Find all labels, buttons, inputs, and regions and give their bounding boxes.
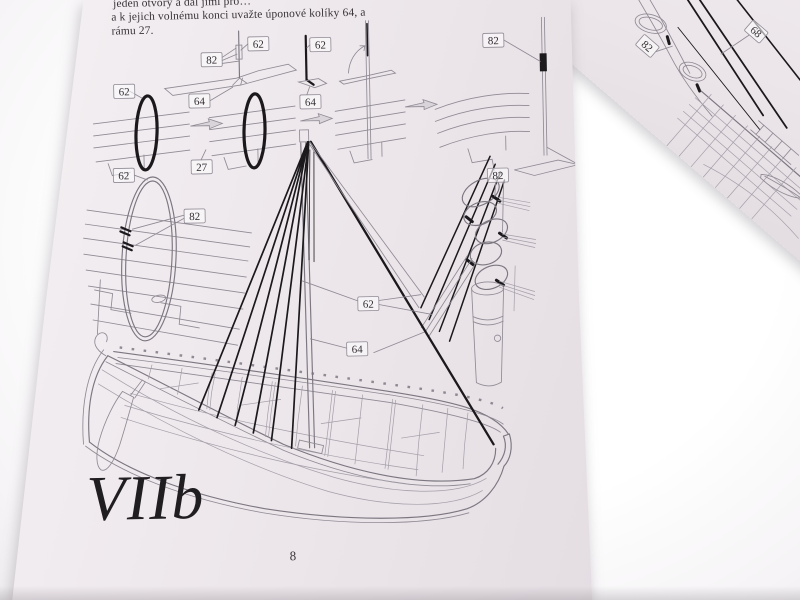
hull-section-sketch-2 <box>209 106 296 170</box>
callout-label: 62 <box>119 86 130 98</box>
step-arrow <box>190 118 222 129</box>
callout-label: 62 <box>363 299 374 311</box>
main-page-drawing: jeden otvory a dál jimi pro… a k jejich … <box>0 0 800 600</box>
step-arrow <box>300 113 332 124</box>
bow-spiral <box>95 333 108 356</box>
callout-64-m: 64 <box>311 338 368 357</box>
step-arrow <box>405 99 437 110</box>
figure-label: VIIb <box>86 461 205 534</box>
photo-of-instruction-page: 82 68 jeden otvory a dál jimi pro… a k j… <box>0 0 800 600</box>
callout-82-f: 82 <box>483 32 541 62</box>
rope-loops-cluster <box>457 172 537 301</box>
sketch-mast-spar <box>338 20 397 159</box>
callout-64-c: 64 <box>189 87 233 108</box>
callout-64-e: 64 <box>300 87 321 109</box>
hull-section-sketch-4 <box>435 93 530 171</box>
masthead <box>300 130 309 142</box>
callout-label: 82 <box>206 55 217 67</box>
callout-82-j: 82 <box>132 209 206 245</box>
callout-label: 82 <box>189 211 200 223</box>
callout-label: 82 <box>492 170 503 182</box>
callout-62-g: 62 <box>114 84 142 99</box>
page-number: 8 <box>290 548 297 563</box>
callout-82-b: 82 <box>201 48 238 67</box>
seizing-marks <box>120 227 132 250</box>
rope-loop-small <box>243 94 265 168</box>
callout-62-a: 62 <box>241 37 269 52</box>
callout-label: 62 <box>315 39 326 51</box>
main-page: jeden otvory a dál jimi pro… a k jejich … <box>0 0 800 600</box>
sketch-mast-82 <box>511 17 578 176</box>
hull-planking-left <box>83 207 254 348</box>
shroud-fan-right <box>418 156 508 342</box>
callout-label: 64 <box>194 96 206 108</box>
callout-label: 62 <box>118 170 129 182</box>
callout-label: 27 <box>196 162 208 174</box>
text-line-2: rámu 27. <box>111 25 153 38</box>
rigging <box>194 138 494 450</box>
mast-band <box>540 53 547 71</box>
callout-62-d: 62 <box>307 37 331 51</box>
callout-label: 64 <box>352 344 364 356</box>
steering-oar <box>95 380 147 470</box>
callout-label: 82 <box>488 35 499 47</box>
shrouds <box>194 142 315 450</box>
stern-post <box>497 434 511 466</box>
callout-label: 64 <box>305 97 317 109</box>
rope-loop-small <box>135 96 158 171</box>
mast-cylinder <box>471 266 517 386</box>
curved-arrow <box>348 46 366 73</box>
sketch-peg-on-plank <box>164 30 297 96</box>
forestay-ropes <box>310 140 425 310</box>
main-page-shadow-wrap: jeden otvory a dál jimi pro… a k jejich … <box>0 0 800 600</box>
callout-label: 62 <box>253 39 264 51</box>
callout-27-h: 27 <box>191 150 212 174</box>
